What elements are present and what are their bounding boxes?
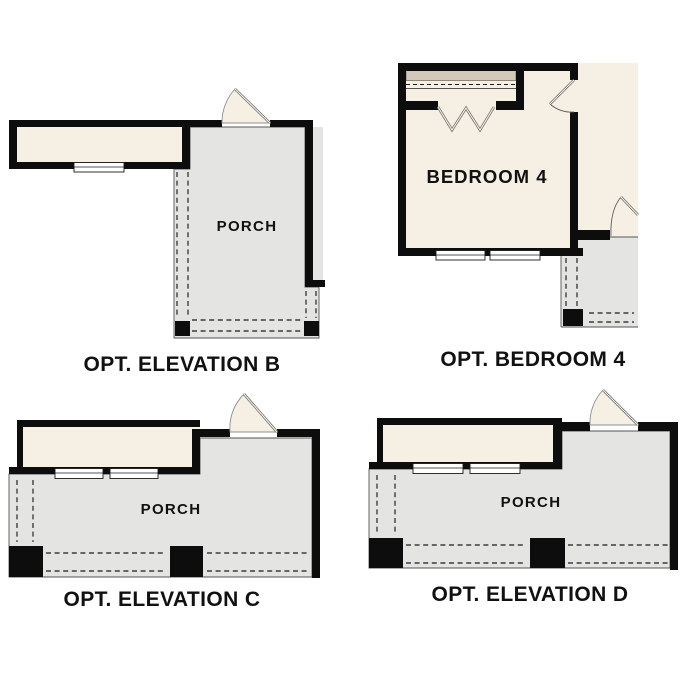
room-interior [377, 418, 562, 469]
porch-post [9, 546, 43, 577]
wall-top-left-segment [9, 120, 222, 127]
door-swing [222, 89, 270, 123]
plan-elevation-b: PORCH OPT. ELEVATION B [9, 89, 325, 376]
wall-left-stub [377, 418, 383, 462]
wall-left-stub [17, 420, 23, 467]
plan-title: OPT. ELEVATION D [432, 583, 629, 606]
wall-top [377, 418, 562, 425]
floorplan-sheet: PORCH OPT. ELEVATION B [0, 0, 687, 687]
plan-title: OPT. BEDROOM 4 [440, 348, 625, 371]
porch-wall-inner-left [553, 422, 562, 462]
porch-wall-right [312, 429, 320, 578]
window-symbol [470, 464, 520, 474]
porch-post [304, 321, 319, 336]
door-swing [230, 394, 277, 432]
window-symbol [55, 469, 103, 479]
window-symbol [413, 464, 463, 474]
plan-elevation-d: PORCH OPT. ELEVATION D [369, 390, 678, 606]
porch-post [369, 538, 403, 568]
porch-label: PORCH [501, 494, 562, 511]
closet-stub-left [398, 101, 438, 110]
plan-elevation-c: PORCH OPT. ELEVATION C [9, 394, 320, 611]
plan-title: OPT. ELEVATION C [64, 588, 261, 611]
closet-stub-right [496, 101, 524, 110]
hall-interior [578, 63, 638, 237]
wall-right [570, 112, 578, 256]
window-symbol [110, 469, 158, 479]
wall-room-bottom [369, 462, 562, 469]
porch-label: PORCH [141, 501, 202, 518]
bedroom-interior [398, 63, 578, 256]
porch-post [175, 321, 190, 336]
room-interior [17, 420, 200, 474]
porch-label: PORCH [217, 218, 278, 235]
porch-post [170, 546, 203, 577]
porch-wall-right [305, 120, 313, 280]
wall-room-bottom [9, 467, 200, 474]
porch-post [563, 309, 583, 326]
plan-title: OPT. ELEVATION B [84, 353, 281, 376]
wall-left [9, 120, 17, 169]
wall-right-stub [570, 63, 578, 80]
wall-top [398, 63, 578, 71]
bedroom-label: BEDROOM 4 [426, 166, 547, 187]
hall-wall-bottom [578, 230, 610, 240]
wall-cap [305, 280, 325, 287]
porch-wall-right [670, 422, 678, 570]
porch-wall-left [182, 120, 190, 169]
floorplan-canvas: PORCH OPT. ELEVATION B [0, 0, 687, 687]
plan-bedroom-4: BEDROOM 4 OPT. BEDROOM 4 [398, 63, 638, 371]
room-interior [9, 120, 190, 169]
porch-wall-inner-left [192, 429, 200, 467]
wall-top [17, 420, 200, 427]
porch-post [530, 538, 565, 568]
door-swing [590, 390, 638, 425]
wall-left [398, 63, 406, 256]
side-slab-strip [313, 127, 323, 280]
